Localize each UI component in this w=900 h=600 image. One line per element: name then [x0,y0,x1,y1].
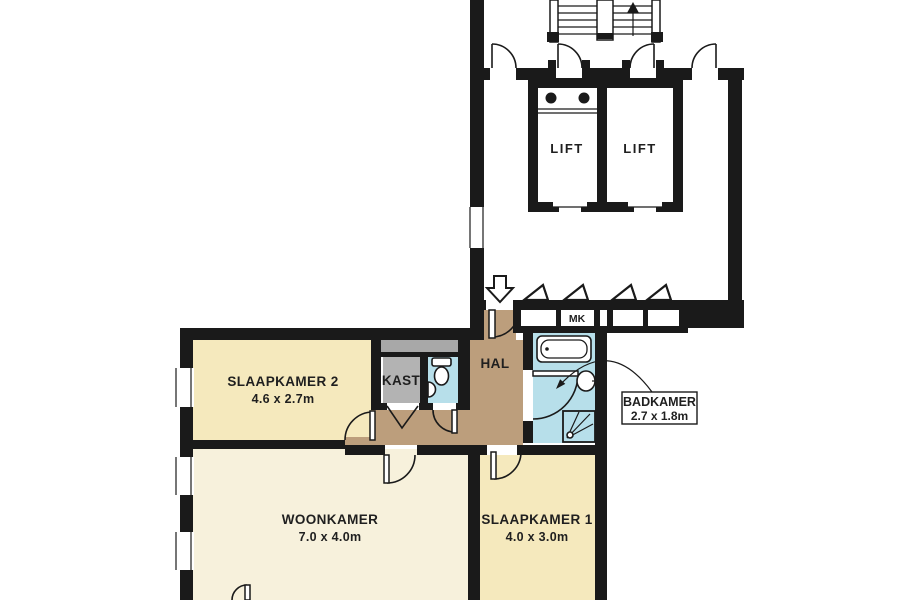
corridor-window [468,207,486,248]
lift-right-label: LIFT [623,141,656,156]
stairwell [547,0,663,42]
hal-label: HAL [481,356,510,371]
stair-jamb-left [547,32,559,42]
landing-wall [470,60,744,80]
bathroom-sink [577,371,595,391]
hal-doorway-neck [345,437,371,445]
slaapkamer1-floor [480,455,595,600]
badkamer-label: BADKAMER [623,395,696,409]
stair-newel-cap [597,33,613,39]
duct-strip [381,340,458,352]
lift-block: LIFT LIFT [528,78,683,212]
slaapkamer2-floor [193,340,371,440]
landing-doors [492,44,716,68]
window-slaapkamer2 [174,368,194,407]
bathtub [537,336,591,362]
floor-plan: LIFT LIFT [0,0,900,600]
slaapkamer2-dims: 4.6 x 2.7m [252,392,315,406]
entrance-arrow-icon [487,276,513,302]
woonkamer-label: WOONKAMER [282,512,379,527]
closet-row: MK [513,285,688,333]
wc-toilet [432,358,451,385]
lift-left-label: LIFT [550,141,583,156]
kast-label: KAST [382,373,421,388]
stair-up-arrow [627,2,639,36]
window-woonkamer-1 [174,457,194,495]
mk-label: MK [569,313,586,325]
closet-doors [524,285,671,300]
slaapkamer2-label: SLAAPKAMER 2 [227,374,338,389]
toilet-sink [428,382,436,397]
floor-plan-svg: LIFT LIFT [0,0,900,600]
window-woonkamer-2 [174,532,194,570]
stair-jamb-right [651,32,663,42]
badkamer-dims: 2.7 x 1.8m [631,409,688,423]
slaapkamer1-label: SLAAPKAMER 1 [481,512,592,527]
slaapkamer1-dims: 4.0 x 3.0m [506,530,569,544]
woonkamer-dims: 7.0 x 4.0m [299,530,362,544]
